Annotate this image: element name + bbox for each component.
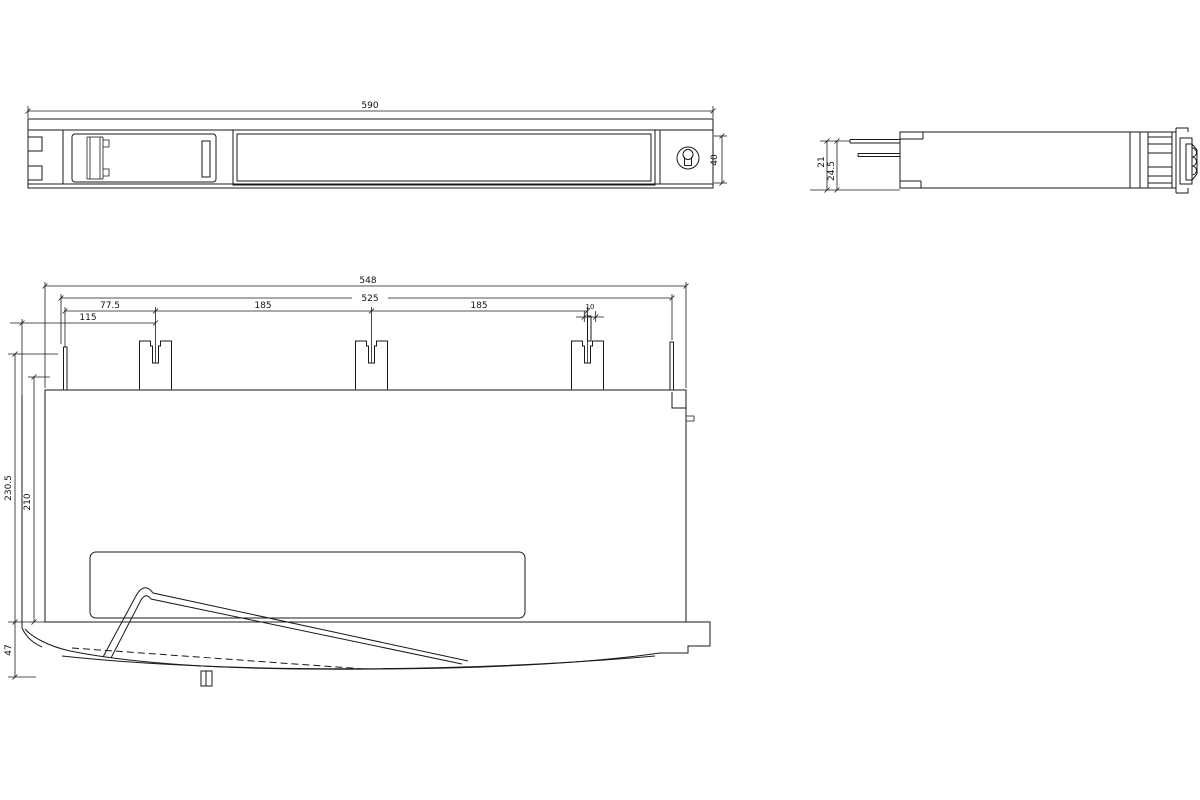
duct-right-step xyxy=(660,622,710,653)
dim-pin-offset: 10 xyxy=(576,303,604,322)
dim-text-side-inner: 21 xyxy=(817,156,827,167)
dim-body-height: 210 xyxy=(23,375,50,625)
duct-sweep-edge xyxy=(25,629,660,669)
duct-left-hook xyxy=(22,628,42,647)
side-mark xyxy=(686,416,694,421)
dim-clip-chain: 77.5 185 185 xyxy=(63,301,591,363)
technical-drawing: 590 40 xyxy=(0,0,1200,800)
dim-top-length: 590 xyxy=(26,101,716,118)
top-view-outline xyxy=(28,119,713,188)
drawing-sheet: 590 40 xyxy=(0,0,1200,800)
front-view: 548 525 77.5 185 185 xyxy=(4,276,710,686)
dim-text-side-outer: 24.5 xyxy=(827,161,837,181)
side-view: 21 24.5 xyxy=(810,128,1197,193)
front-body-outline xyxy=(45,390,686,622)
side-bottom-notch xyxy=(900,181,921,188)
panel-slot xyxy=(202,141,210,177)
top-view: 590 40 xyxy=(26,101,728,188)
dim-duct-height: 47 xyxy=(4,622,36,680)
side-body-outline xyxy=(900,132,1130,188)
dim-overall-height: 230.5 xyxy=(4,352,58,625)
dim-text-duct-height: 47 xyxy=(4,644,14,655)
dim-text-clip-pitch-1: 185 xyxy=(254,301,271,311)
dim-text-body-height: 210 xyxy=(23,493,33,510)
connector-detail xyxy=(87,137,109,179)
dim-text-top-height: 40 xyxy=(710,154,720,166)
label-plate xyxy=(90,552,525,618)
dim-text-overall-height: 230.5 xyxy=(4,475,14,501)
left-pin xyxy=(64,347,68,390)
dim-text-top-length: 590 xyxy=(361,101,378,111)
dim-text-edge-offset: 115 xyxy=(79,313,96,323)
dim-text-clip-offset: 77.5 xyxy=(100,301,120,311)
dim-mounting-width: 525 xyxy=(59,292,675,344)
long-panel-outer xyxy=(233,130,655,185)
right-pin xyxy=(670,342,674,390)
dim-text-mounting-width: 525 xyxy=(361,294,378,304)
dim-text-pin-offset: 10 xyxy=(586,303,595,311)
side-connector-stack xyxy=(1130,128,1197,193)
left-tab-upper xyxy=(28,137,42,151)
sub-panel xyxy=(72,134,216,182)
small-pin xyxy=(588,316,592,341)
sub-d-connector xyxy=(1180,138,1197,184)
dim-side-offsets: 21 24.5 xyxy=(810,139,900,193)
top-right-notch xyxy=(672,392,686,408)
left-tab-lower xyxy=(28,166,42,180)
side-prongs xyxy=(850,140,900,157)
side-top-notch xyxy=(900,132,923,139)
dim-text-clip-pitch-2: 185 xyxy=(470,301,487,311)
mountain-outer xyxy=(103,588,468,661)
mountain-inner xyxy=(111,596,462,664)
long-panel-inner xyxy=(237,134,651,181)
dim-text-overall-width: 548 xyxy=(359,276,376,286)
keyhole xyxy=(677,147,699,169)
